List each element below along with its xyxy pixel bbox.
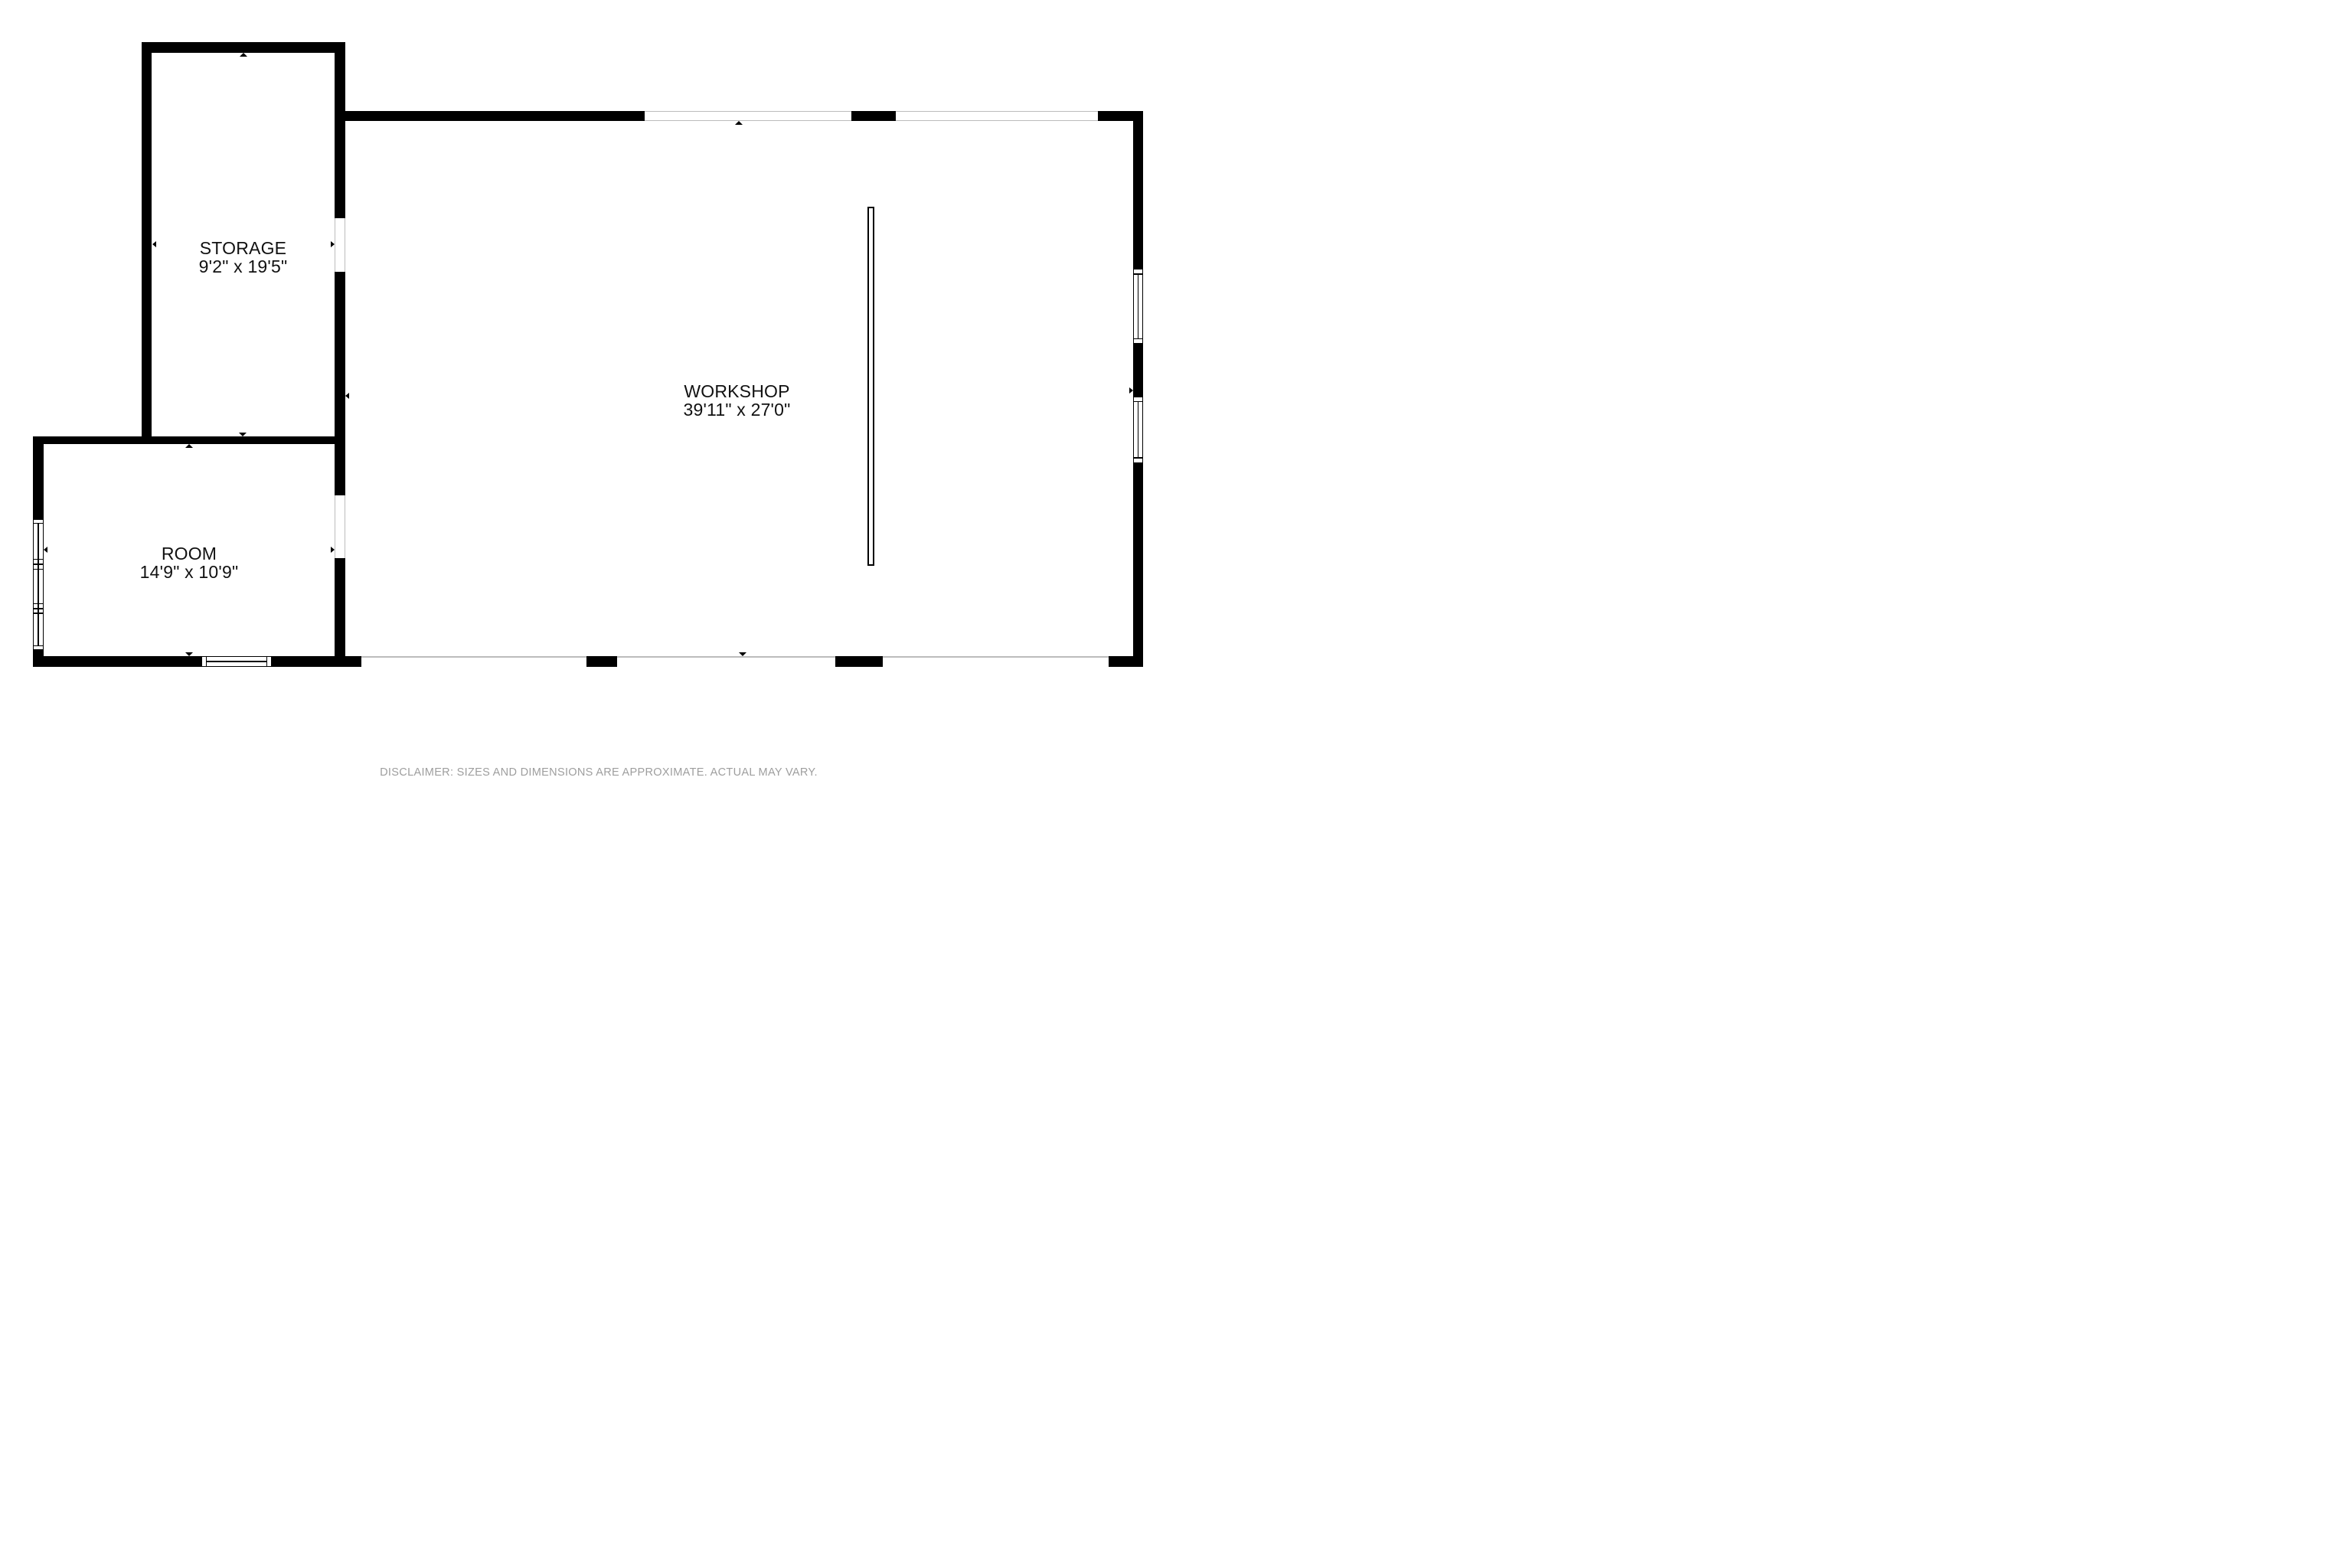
storage-arrow-up-icon [240, 53, 247, 57]
storage-arrow-left-icon [152, 241, 156, 247]
room-arrow-up-icon [185, 444, 193, 448]
workshop-bottom-opening-1 [361, 656, 586, 658]
workshop-top-opening-2 [896, 111, 1098, 121]
disclaimer-text: DISCLAIMER: SIZES AND DIMENSIONS ARE APP… [380, 766, 818, 778]
storage-left-wall [142, 42, 152, 444]
room-name: ROOM [140, 544, 239, 563]
workshop-bottom-opening-2 [617, 656, 835, 658]
divider-wall-middle [335, 272, 346, 495]
workshop-arrow-down-icon [739, 652, 746, 656]
room-bottom-window [201, 656, 273, 667]
window-glass-line [1138, 273, 1139, 339]
window-glass-line [38, 523, 39, 647]
workshop-arrow-right-icon [1129, 387, 1133, 394]
room-dimensions: 14'9" x 10'9" [140, 563, 239, 581]
storage-dimensions: 9'2" x 19'5" [199, 257, 288, 276]
workshop-interior-partition [867, 207, 875, 566]
workshop-right-wall-segment-3 [1133, 463, 1144, 667]
workshop-right-window-1 [1133, 269, 1144, 344]
workshop-bottom-wall-segment-3 [1109, 656, 1143, 667]
workshop-bottom-wall-segment-2 [835, 656, 883, 667]
storage-top-wall [142, 42, 346, 53]
workshop-bottom-opening-3 [883, 656, 1109, 658]
room-arrow-right-icon [331, 547, 335, 553]
workshop-dimensions: 39'11" x 27'0" [683, 400, 790, 419]
workshop-name: WORKSHOP [683, 382, 790, 400]
divider-wall-lower [335, 558, 346, 667]
storage-arrow-down-icon [239, 433, 247, 436]
window-glass-line [206, 661, 268, 662]
workshop-right-wall-segment-1 [1133, 121, 1144, 269]
workshop-arrow-left-icon [345, 393, 349, 399]
room-left-wall-upper [33, 436, 44, 519]
window-glass-line [1138, 401, 1139, 459]
workshop-bottom-wall-segment-1 [586, 656, 617, 667]
room-arrow-left-icon [44, 547, 47, 553]
storage-arrow-right-icon [331, 241, 335, 247]
workshop-right-wall-segment-2 [1133, 344, 1144, 397]
room-label: ROOM 14'9" x 10'9" [140, 544, 239, 581]
workshop-top-opening-1 [645, 111, 851, 121]
divider-wall-upper [335, 42, 346, 218]
room-top-wall [33, 436, 345, 444]
workshop-top-wall-segment-2 [851, 111, 897, 121]
floor-plan: STORAGE 9'2" x 19'5" WORKSHOP 39'11" x 2… [0, 0, 1176, 784]
workshop-top-wall-segment-3 [1098, 111, 1143, 121]
room-left-window-band [33, 519, 44, 651]
workshop-right-window-2 [1133, 397, 1144, 463]
storage-doorway-opening [335, 218, 346, 272]
workshop-label: WORKSHOP 39'11" x 27'0" [683, 382, 790, 419]
workshop-arrow-up-icon [735, 121, 743, 125]
storage-name: STORAGE [199, 239, 288, 257]
room-bottom-wall-segment-1 [33, 656, 201, 667]
workshop-top-wall-segment-1 [345, 111, 645, 121]
room-bottom-wall-segment-2 [272, 656, 361, 667]
room-doorway-opening [335, 495, 346, 559]
storage-label: STORAGE 9'2" x 19'5" [199, 239, 288, 276]
room-arrow-down-icon [185, 652, 193, 656]
